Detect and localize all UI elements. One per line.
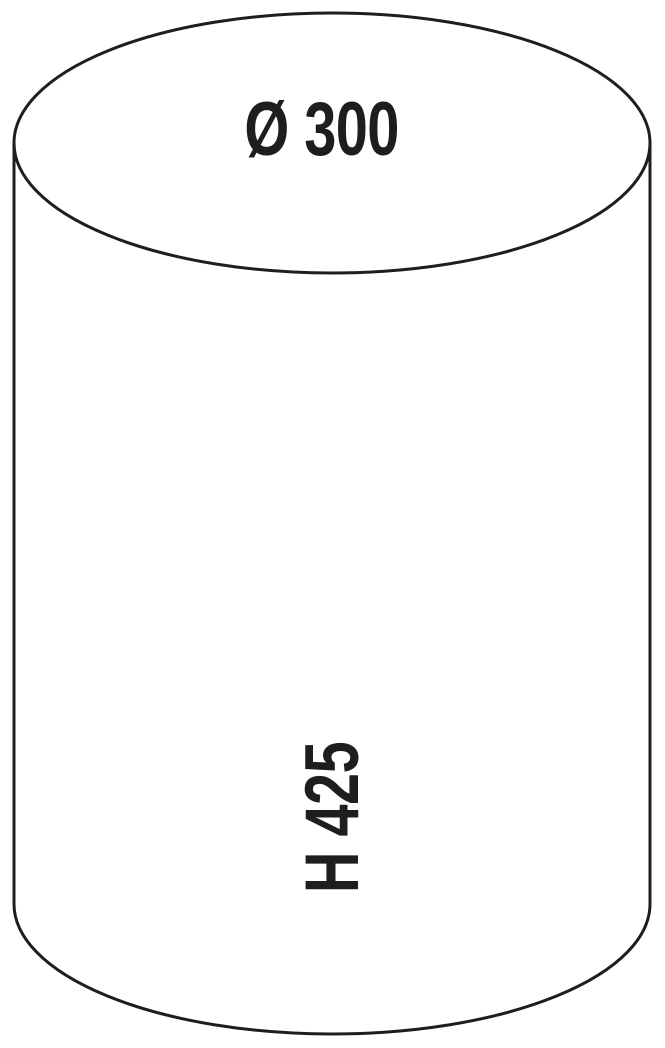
diameter-label: Ø 300 — [122, 92, 522, 168]
height-label-text: H 425 — [295, 741, 371, 892]
diameter-label-text: Ø 300 — [245, 92, 399, 168]
height-label: H 425 — [295, 667, 371, 967]
cylinder-diagram: Ø 300 H 425 — [0, 0, 665, 1048]
